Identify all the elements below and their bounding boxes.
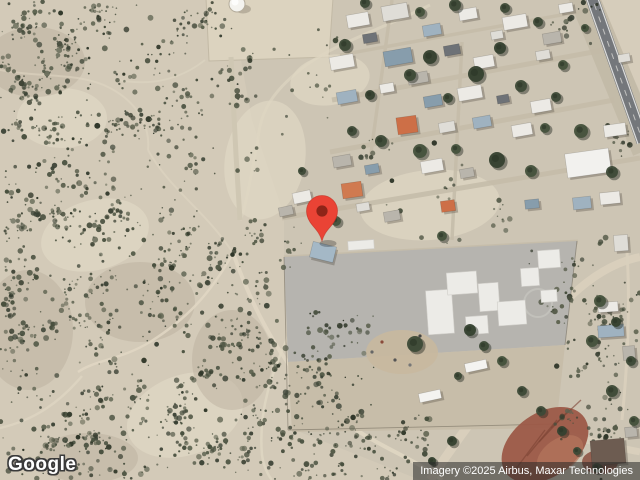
attribution-bar: Imagery ©2025 Airbus, Maxar Technologies: [413, 462, 640, 480]
map-canvas[interactable]: Google Imagery ©2025 Airbus, Maxar Techn…: [0, 0, 640, 480]
attribution-text: Imagery ©2025 Airbus, Maxar Technologies: [420, 465, 633, 477]
google-logo[interactable]: Google: [8, 454, 76, 476]
satellite-imagery: [0, 0, 640, 480]
